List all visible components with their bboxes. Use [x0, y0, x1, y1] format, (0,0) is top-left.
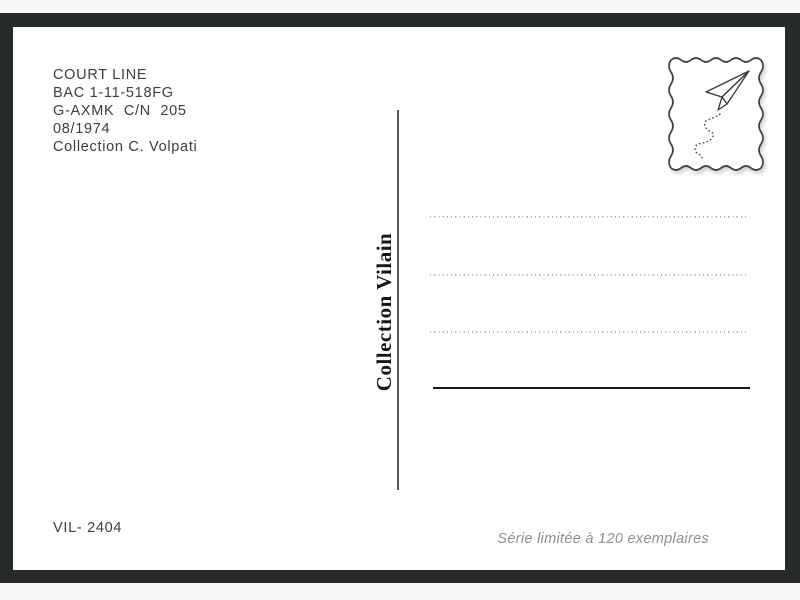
spine-divider-line [397, 110, 399, 490]
caption-airline: COURT LINE [53, 66, 197, 84]
postcard-back: COURT LINE BAC 1-11-518FG G-AXMK C/N 205… [13, 27, 785, 570]
reference-number: VIL- 2404 [53, 520, 122, 536]
address-line [430, 274, 748, 276]
address-line [430, 331, 748, 333]
edition-note: Série limitée à 120 exemplaires [433, 531, 709, 547]
signature-line [433, 387, 750, 389]
caption-registration: G-AXMK C/N 205 [53, 102, 197, 120]
caption-date: 08/1974 [53, 120, 197, 138]
caption-collection-credit: Collection C. Volpati [53, 138, 197, 156]
paper-plane-icon [665, 51, 767, 179]
caption-block: COURT LINE BAC 1-11-518FG G-AXMK C/N 205… [53, 66, 197, 156]
collection-spine-label: Collection Vilain [372, 231, 396, 393]
address-line [430, 216, 748, 218]
stamp-box [665, 51, 767, 179]
caption-aircraft-type: BAC 1-11-518FG [53, 84, 197, 102]
